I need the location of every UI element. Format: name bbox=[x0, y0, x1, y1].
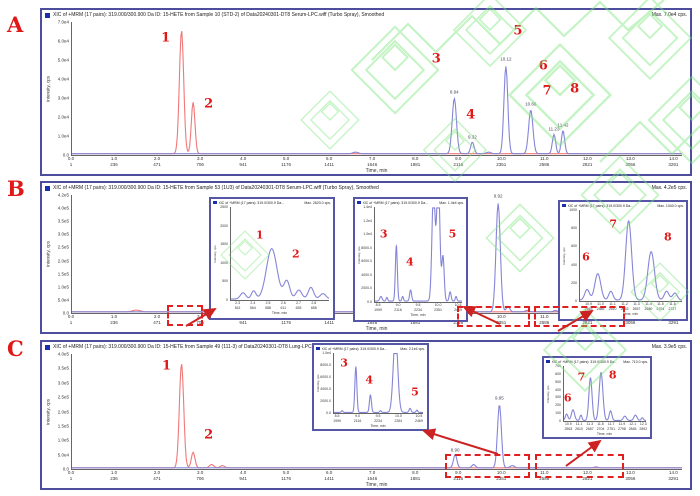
x-axis-title: Time, min bbox=[71, 168, 682, 175]
peak-number-1: 1 bbox=[161, 31, 170, 44]
x-axis-title: Time, min bbox=[71, 482, 682, 489]
y-tick-label: 1.0e4 bbox=[58, 134, 69, 139]
y-tick-label: 1.0e5 bbox=[58, 438, 69, 443]
y-axis-ticks: 25002000150010005000 bbox=[217, 207, 230, 300]
x-tick-label: 1646 bbox=[367, 162, 377, 167]
y-axis-ticks: 1.4e41.2e41.0e48000.06000.04000.02000.00… bbox=[361, 207, 374, 302]
x-tick-label: 564 bbox=[250, 306, 256, 310]
roi-box-peaks-3-4-5 bbox=[457, 306, 530, 327]
x-tick-label: 4.0 bbox=[240, 156, 246, 161]
titlebar-A: XIC of +MRM (17 pairs): 319.000/300.900 … bbox=[42, 10, 690, 20]
x-tick-label: 2563 bbox=[564, 427, 572, 431]
y-tick-label: 6000.0 bbox=[361, 259, 372, 263]
titlebar-text: XIC of +MRM (17 pairs): 319.000/300.900 … bbox=[53, 185, 649, 191]
x-tick-label: 11.7 bbox=[608, 422, 615, 426]
app-icon bbox=[45, 13, 50, 18]
y-tick-label: 5.0e4 bbox=[58, 297, 69, 302]
retention-time-label: 9.92 bbox=[494, 194, 503, 199]
x-tick-label: 10.9 bbox=[565, 422, 572, 426]
x-tick-label: 1 bbox=[70, 320, 73, 325]
y-tick-label: 4.0e4 bbox=[58, 77, 69, 82]
x-tick-label: 8.0 bbox=[412, 470, 418, 475]
peak-number-6: 6 bbox=[564, 392, 572, 403]
y-tick-label: 800 bbox=[571, 226, 577, 230]
x-axis-scan-ticks: 541564588611635658 bbox=[230, 306, 329, 311]
x-tick-label: 13.0 bbox=[626, 156, 635, 161]
x-tick-label: 3.0 bbox=[197, 470, 203, 475]
x-tick-label: 1411 bbox=[324, 320, 334, 325]
max-intensity-label: Max. 3.9e5 cps. bbox=[652, 344, 687, 350]
y-tick-label: 100 bbox=[555, 411, 561, 415]
inset-peaks-1-2: XIC of +MRM (17 pairs): 319.0/300.9 Da..… bbox=[209, 197, 335, 320]
x-tick-label: 11.9 bbox=[619, 422, 626, 426]
x-tick-label: 9.0 bbox=[355, 414, 360, 418]
x-tick-label: 5.0 bbox=[283, 470, 289, 475]
x-tick-label: 8.0 bbox=[412, 156, 418, 161]
x-tick-label: 9.0 bbox=[455, 156, 461, 161]
x-tick-label: 2351 bbox=[496, 162, 506, 167]
y-tick-label: 3.0e5 bbox=[58, 380, 69, 385]
app-icon bbox=[45, 345, 50, 350]
x-tick-label: 1.0 bbox=[111, 470, 117, 475]
x-tick-label: 11.6 bbox=[669, 302, 676, 306]
y-tick-label: 1.0e4 bbox=[322, 351, 331, 355]
x-tick-label: 0.0 bbox=[68, 470, 74, 475]
peak-number-7: 7 bbox=[543, 85, 552, 98]
y-tick-label: 700 bbox=[555, 364, 561, 368]
x-tick-label: 0.0 bbox=[68, 156, 74, 161]
x-tick-label: 10.0 bbox=[435, 303, 442, 307]
x-tick-label: 1176 bbox=[281, 476, 291, 481]
y-tick-label: 1.0e5 bbox=[58, 284, 69, 289]
x-tick-label: 11.4 bbox=[645, 302, 652, 306]
x-tick-label: 706 bbox=[196, 476, 204, 481]
x-tick-label: 8.5 bbox=[335, 414, 340, 418]
y-tick-label: 600 bbox=[571, 244, 577, 248]
inset-chromatogram-C2: 678 bbox=[563, 366, 646, 422]
x-tick-label: 6.0 bbox=[326, 156, 332, 161]
y-axis-ticks: 7006005004003002001000 bbox=[550, 366, 563, 421]
y-tick-label: 2.5e5 bbox=[58, 245, 69, 250]
x-tick-label: 706 bbox=[196, 162, 204, 167]
x-tick-label: 2751 bbox=[607, 427, 615, 431]
x-tick-label: 2.3 bbox=[235, 301, 240, 305]
peak-number-3: 3 bbox=[432, 53, 441, 66]
titlebar-text: XIC of +MRM (17 pairs): 319.0/300.9 Da..… bbox=[363, 200, 438, 206]
titlebar-text: XIC of +MRM (17 pairs): 319.0/300.9 Da..… bbox=[568, 203, 656, 209]
x-axis-scan-ticks: 19992116223423512469 bbox=[333, 419, 423, 424]
inset-titlebar: XIC of +MRM (17 pairs): 319.0/300.9 Da..… bbox=[211, 199, 333, 206]
x-tick-label: 2.7 bbox=[296, 301, 301, 305]
x-tick-label: 635 bbox=[296, 306, 302, 310]
x-tick-label: 2116 bbox=[354, 419, 362, 423]
retention-time-label: 8.90 bbox=[451, 448, 460, 453]
x-tick-label: 471 bbox=[153, 320, 161, 325]
x-tick-label: 2657 bbox=[586, 427, 594, 431]
titlebar-text: XIC of +MRM (17 pairs): 319.000/300.900 … bbox=[53, 12, 649, 18]
y-tick-label: 4000.0 bbox=[320, 387, 331, 391]
y-tick-label: 2500 bbox=[220, 205, 228, 209]
panel-A: XIC of +MRM (17 pairs): 319.000/300.900 … bbox=[40, 8, 692, 176]
peak-number-3: 3 bbox=[340, 357, 348, 368]
y-axis-title: Intensity, cps bbox=[546, 385, 550, 402]
x-tick-label: 941 bbox=[239, 162, 247, 167]
y-tick-label: 0 bbox=[226, 298, 228, 302]
x-tick-label: 11.5 bbox=[657, 302, 664, 306]
peak-number-2: 2 bbox=[204, 98, 213, 111]
max-intensity-label: Max. 710.0 cps. bbox=[623, 359, 648, 365]
x-tick-label: 1999 bbox=[333, 419, 341, 423]
peak-number-6: 6 bbox=[539, 59, 548, 72]
peak-number-7: 7 bbox=[578, 372, 586, 383]
inset-chromatogram-B2: 345 bbox=[374, 207, 462, 303]
x-tick-label: 2610 bbox=[575, 427, 583, 431]
x-tick-label: 4.0 bbox=[240, 470, 246, 475]
x-tick-label: 7.0 bbox=[369, 470, 375, 475]
x-tick-label: 2845 bbox=[629, 427, 637, 431]
peak-number-6: 6 bbox=[582, 252, 590, 263]
titlebar-text: XIC of +MRM (17 pairs): 319.0/300.9 Da..… bbox=[322, 346, 399, 352]
peak-number-2: 2 bbox=[204, 428, 213, 441]
x-tick-label: 10.5 bbox=[416, 414, 423, 418]
x-axis-title: Time, min bbox=[374, 313, 462, 318]
x-tick-label: 2704 bbox=[597, 427, 605, 431]
x-axis-title: Time, min bbox=[563, 432, 646, 437]
y-axis-title: Intensity, cps bbox=[45, 399, 50, 425]
inset-chromatogram-B1: 12 bbox=[230, 207, 329, 301]
y-tick-label: 1000 bbox=[569, 208, 577, 212]
y-axis-title-column: Intensity, cps bbox=[44, 22, 51, 155]
x-tick-label: 2680 bbox=[645, 307, 653, 311]
app-icon bbox=[45, 186, 50, 191]
x-tick-label: 1646 bbox=[367, 476, 377, 481]
y-axis-title: Intensity, cps bbox=[562, 247, 566, 264]
y-axis-ticks: 10008006004002000 bbox=[566, 210, 579, 301]
panel-C: XIC of +MRM (17 pairs): 319.000/300.900 … bbox=[40, 340, 692, 490]
titlebar-B: XIC of +MRM (17 pairs): 319.000/300.900 … bbox=[42, 183, 690, 193]
y-tick-label: 6.0e4 bbox=[58, 39, 69, 44]
y-tick-label: 2000.0 bbox=[361, 286, 372, 290]
roi-box-peaks-6-7-8 bbox=[535, 454, 624, 478]
max-intensity-label: Max. 4.2e5 cps. bbox=[652, 185, 687, 191]
y-axis-ticks: 1.0e48000.06000.04000.02000.00.0 bbox=[320, 353, 333, 413]
y-tick-label: 2.0e5 bbox=[58, 409, 69, 414]
inset-peaks-6-7-8: XIC of +MRM (17 pairs): 319.0/300.9 Da..… bbox=[558, 200, 688, 321]
x-tick-label: 3291 bbox=[668, 162, 678, 167]
y-tick-label: 4.0e5 bbox=[58, 352, 69, 357]
x-tick-label: 14.0 bbox=[669, 156, 678, 161]
y-axis-title: Intensity, cps bbox=[45, 241, 50, 267]
max-intensity-label: Max. 7.0e4 cps. bbox=[652, 12, 687, 18]
x-tick-label: 2116 bbox=[394, 308, 402, 312]
x-tick-label: 3056 bbox=[625, 476, 635, 481]
inset-titlebar: XIC of +MRM (17 pairs): 319.0/300.9 Da..… bbox=[560, 202, 686, 209]
y-axis-title: Intensity, cps bbox=[213, 245, 217, 262]
y-axis-title-column: Intensity, cps bbox=[44, 354, 51, 469]
roi-box-peaks-6-7-8 bbox=[534, 306, 625, 327]
x-tick-label: 10.0 bbox=[497, 156, 506, 161]
peak-number-3: 3 bbox=[380, 228, 388, 239]
x-tick-label: 2727 bbox=[669, 307, 677, 311]
y-tick-label: 3.5e5 bbox=[58, 219, 69, 224]
app-icon bbox=[546, 360, 550, 364]
x-tick-label: 12.3 bbox=[640, 422, 647, 426]
x-tick-label: 1411 bbox=[324, 162, 334, 167]
y-tick-label: 0 bbox=[559, 419, 561, 423]
x-axis-title: Time, min bbox=[71, 326, 682, 333]
retention-time-label: 11.42 bbox=[558, 124, 569, 129]
x-tick-label: 941 bbox=[239, 476, 247, 481]
x-axis-scan-ticks: 1236471706941117614111646188121162351258… bbox=[71, 162, 682, 168]
roi-box-peaks-3-4-5 bbox=[445, 454, 530, 478]
x-tick-label: 12.1 bbox=[629, 422, 636, 426]
titlebar-text: XIC of +MRM (17 pairs): 319.0/300.9 Da..… bbox=[219, 200, 303, 206]
inset-peaks-3-4-5: XIC of +MRM (17 pairs): 319.0/300.9 Da..… bbox=[353, 197, 468, 322]
y-tick-label: 1.4e4 bbox=[363, 205, 372, 209]
x-tick-label: 3.0 bbox=[197, 156, 203, 161]
x-tick-label: 541 bbox=[235, 306, 241, 310]
x-tick-label: 2892 bbox=[639, 427, 647, 431]
inset-chromatogram-C1: 345 bbox=[333, 353, 423, 414]
x-tick-label: 11.3 bbox=[633, 302, 640, 306]
x-tick-label: 658 bbox=[311, 306, 317, 310]
x-tick-label: 8.5 bbox=[376, 303, 381, 307]
peak-number-7: 7 bbox=[609, 218, 617, 229]
x-tick-label: 6.0 bbox=[326, 470, 332, 475]
x-tick-label: 11.0 bbox=[540, 156, 548, 161]
y-tick-label: 1.0e4 bbox=[363, 232, 372, 236]
x-tick-label: 588 bbox=[265, 306, 271, 310]
peak-number-1: 1 bbox=[256, 229, 264, 240]
x-tick-label: 11.1 bbox=[576, 422, 583, 426]
peak-number-4: 4 bbox=[406, 257, 414, 268]
x-tick-label: 1 bbox=[70, 476, 73, 481]
roi-box-peaks-1-2 bbox=[167, 305, 203, 326]
peak-number-5: 5 bbox=[449, 228, 457, 239]
x-tick-label: 11.5 bbox=[597, 422, 604, 426]
x-tick-label: 941 bbox=[239, 320, 247, 325]
panel-label-B: B bbox=[7, 176, 25, 201]
y-tick-label: 7.0e4 bbox=[58, 20, 69, 25]
x-tick-label: 2.5 bbox=[266, 301, 271, 305]
y-tick-label: 1.5e5 bbox=[58, 423, 69, 428]
x-tick-label: 2351 bbox=[395, 419, 403, 423]
max-intensity-label: Max. 2620.0 cps. bbox=[304, 200, 331, 206]
x-tick-label: 1.0 bbox=[111, 156, 117, 161]
x-tick-label: 1881 bbox=[410, 162, 420, 167]
app-icon bbox=[316, 347, 320, 351]
app-icon bbox=[213, 201, 217, 205]
peak-number-2: 2 bbox=[292, 248, 300, 259]
x-tick-label: 9.5 bbox=[416, 303, 421, 307]
y-tick-label: 1.5e5 bbox=[58, 271, 69, 276]
x-tick-label: 471 bbox=[153, 162, 161, 167]
y-axis-ticks: 7.0e46.0e45.0e44.0e43.0e42.0e41.0e40.0 bbox=[51, 22, 71, 155]
peak-number-5: 5 bbox=[513, 25, 522, 38]
y-tick-label: 600 bbox=[555, 372, 561, 376]
y-tick-label: 0.0 bbox=[326, 411, 331, 415]
x-tick-label: 12.0 bbox=[583, 156, 592, 161]
x-tick-label: 2586 bbox=[539, 162, 549, 167]
y-axis-ticks: 4.0e53.5e53.0e52.5e52.0e51.5e51.0e55.0e4… bbox=[51, 354, 71, 469]
panel-label-C: C bbox=[7, 336, 24, 361]
x-tick-label: 2234 bbox=[374, 419, 382, 423]
y-tick-label: 2.0e5 bbox=[58, 258, 69, 263]
x-tick-label: 611 bbox=[281, 306, 287, 310]
x-tick-label: 2.4 bbox=[250, 301, 255, 305]
y-tick-label: 8000.0 bbox=[361, 246, 372, 250]
x-tick-label: 2657 bbox=[633, 307, 641, 311]
retention-time-label: 10.12 bbox=[500, 57, 511, 62]
x-tick-label: 1176 bbox=[281, 162, 291, 167]
x-tick-label: 2.0 bbox=[154, 314, 160, 319]
inset-peaks-6-7-8: XIC of +MRM (17 pairs): 319.0/300.9 Da..… bbox=[542, 356, 652, 439]
y-tick-label: 1500 bbox=[220, 242, 228, 246]
retention-time-label: 9.32 bbox=[468, 136, 477, 141]
x-tick-label: 1.0 bbox=[111, 314, 117, 319]
y-tick-label: 200 bbox=[571, 281, 577, 285]
y-tick-label: 0.0 bbox=[367, 300, 372, 304]
titlebar-text: XIC of +MRM (17 pairs): 319.0/300.9 Da..… bbox=[552, 359, 622, 365]
x-tick-label: 2234 bbox=[414, 308, 422, 312]
x-tick-label: 13.0 bbox=[626, 470, 635, 475]
retention-time-label: 11.23 bbox=[549, 128, 560, 133]
x-tick-label: 2351 bbox=[434, 308, 442, 312]
y-tick-label: 5.0e4 bbox=[58, 58, 69, 63]
x-tick-label: 7.0 bbox=[369, 156, 375, 161]
y-tick-label: 2.0e4 bbox=[58, 115, 69, 120]
max-intensity-label: Max. 2.1e4 cps. bbox=[400, 346, 425, 352]
x-tick-label: 14.0 bbox=[669, 470, 678, 475]
y-tick-label: 200 bbox=[555, 403, 561, 407]
app-icon bbox=[562, 204, 566, 208]
y-tick-label: 300 bbox=[555, 395, 561, 399]
x-tick-label: 0.0 bbox=[68, 314, 74, 319]
x-tick-label: 5.0 bbox=[283, 156, 289, 161]
x-tick-label: 1881 bbox=[410, 476, 420, 481]
y-tick-label: 1.2e4 bbox=[363, 219, 372, 223]
y-tick-label: 3.0e5 bbox=[58, 232, 69, 237]
x-tick-label: 2.0 bbox=[154, 156, 160, 161]
y-axis-title: Intensity, cps bbox=[316, 374, 320, 391]
max-intensity-label: Max. 1.4e4 cps. bbox=[439, 200, 464, 206]
y-tick-label: 500 bbox=[555, 380, 561, 384]
panel-B: XIC of +MRM (17 pairs): 319.000/300.900 … bbox=[40, 181, 692, 334]
y-tick-label: 8000.0 bbox=[320, 363, 331, 367]
x-axis-scan-ticks: 25632610265727042751279828452892 bbox=[563, 427, 646, 432]
x-tick-label: 471 bbox=[153, 476, 161, 481]
y-tick-label: 5.0e4 bbox=[58, 452, 69, 457]
y-tick-label: 500 bbox=[222, 279, 228, 283]
retention-time-label: 9.95 bbox=[495, 397, 504, 402]
y-tick-label: 4000.0 bbox=[361, 273, 372, 277]
x-tick-label: 3056 bbox=[625, 162, 635, 167]
x-tick-label: 3291 bbox=[668, 476, 678, 481]
peak-number-8: 8 bbox=[570, 82, 579, 95]
x-tick-label: 9.5 bbox=[376, 414, 381, 418]
x-tick-label: 1176 bbox=[281, 320, 291, 325]
max-intensity-label: Max. 1040.0 cps. bbox=[657, 203, 684, 209]
y-tick-label: 2.5e5 bbox=[58, 395, 69, 400]
x-tick-label: 9.0 bbox=[396, 303, 401, 307]
x-tick-label: 11.3 bbox=[586, 422, 593, 426]
y-axis-title: Intensity, cps bbox=[45, 76, 50, 102]
peak-number-1: 1 bbox=[162, 359, 171, 372]
x-tick-label: 236 bbox=[110, 476, 118, 481]
retention-time-label: 8.94 bbox=[450, 91, 459, 96]
x-tick-label: 236 bbox=[110, 162, 118, 167]
y-tick-label: 4.0e5 bbox=[58, 206, 69, 211]
x-tick-label: 2704 bbox=[657, 307, 665, 311]
peak-number-8: 8 bbox=[609, 369, 617, 380]
x-tick-label: 236 bbox=[110, 320, 118, 325]
y-tick-label: 1000 bbox=[220, 261, 228, 265]
app-icon bbox=[357, 201, 361, 205]
panel-label-A: A bbox=[7, 12, 23, 37]
x-axis-scan-ticks: 19992116223423512469 bbox=[374, 308, 462, 313]
y-tick-label: 6000.0 bbox=[320, 375, 331, 379]
y-tick-label: 2000.0 bbox=[320, 399, 331, 403]
y-tick-label: 400 bbox=[555, 388, 561, 392]
x-tick-label: 1411 bbox=[324, 476, 334, 481]
chromatogram-A: 1238.9449.32510.12610.66711.23811.42 bbox=[71, 22, 682, 156]
x-tick-label: 2.8 bbox=[311, 301, 316, 305]
peak-number-5: 5 bbox=[411, 387, 419, 398]
x-tick-label: 1 bbox=[70, 162, 73, 167]
peak-number-8: 8 bbox=[664, 232, 672, 243]
y-tick-label: 400 bbox=[571, 263, 577, 267]
x-tick-label: 1999 bbox=[374, 308, 382, 312]
x-tick-label: 2116 bbox=[453, 162, 463, 167]
peak-number-4: 4 bbox=[466, 109, 475, 122]
y-tick-label: 4.2e5 bbox=[58, 193, 69, 198]
retention-time-label: 10.66 bbox=[525, 103, 536, 108]
inset-chromatogram-B3: 678 bbox=[579, 210, 682, 302]
x-tick-label: 10.0 bbox=[395, 414, 402, 418]
y-tick-label: 0 bbox=[575, 299, 577, 303]
y-tick-label: 2000 bbox=[220, 224, 228, 228]
x-tick-label: 2.6 bbox=[281, 301, 286, 305]
inset-peaks-3-4-5: XIC of +MRM (17 pairs): 319.0/300.9 Da..… bbox=[312, 343, 429, 431]
x-tick-label: 2821 bbox=[582, 162, 592, 167]
x-tick-label: 2798 bbox=[618, 427, 626, 431]
y-tick-label: 3.0e4 bbox=[58, 96, 69, 101]
x-axis-title: Time, min bbox=[333, 424, 423, 429]
y-tick-label: 3.5e5 bbox=[58, 366, 69, 371]
x-tick-label: 2469 bbox=[415, 419, 423, 423]
peak-number-4: 4 bbox=[365, 375, 373, 386]
y-axis-ticks: 4.2e54.0e53.5e53.0e52.5e52.0e51.5e51.0e5… bbox=[51, 195, 71, 313]
y-axis-title: Intensity, cps bbox=[357, 246, 361, 263]
x-tick-label: 2.0 bbox=[154, 470, 160, 475]
y-axis-title-column: Intensity, cps bbox=[44, 195, 51, 313]
x-axis-title: Time, min bbox=[230, 311, 329, 316]
